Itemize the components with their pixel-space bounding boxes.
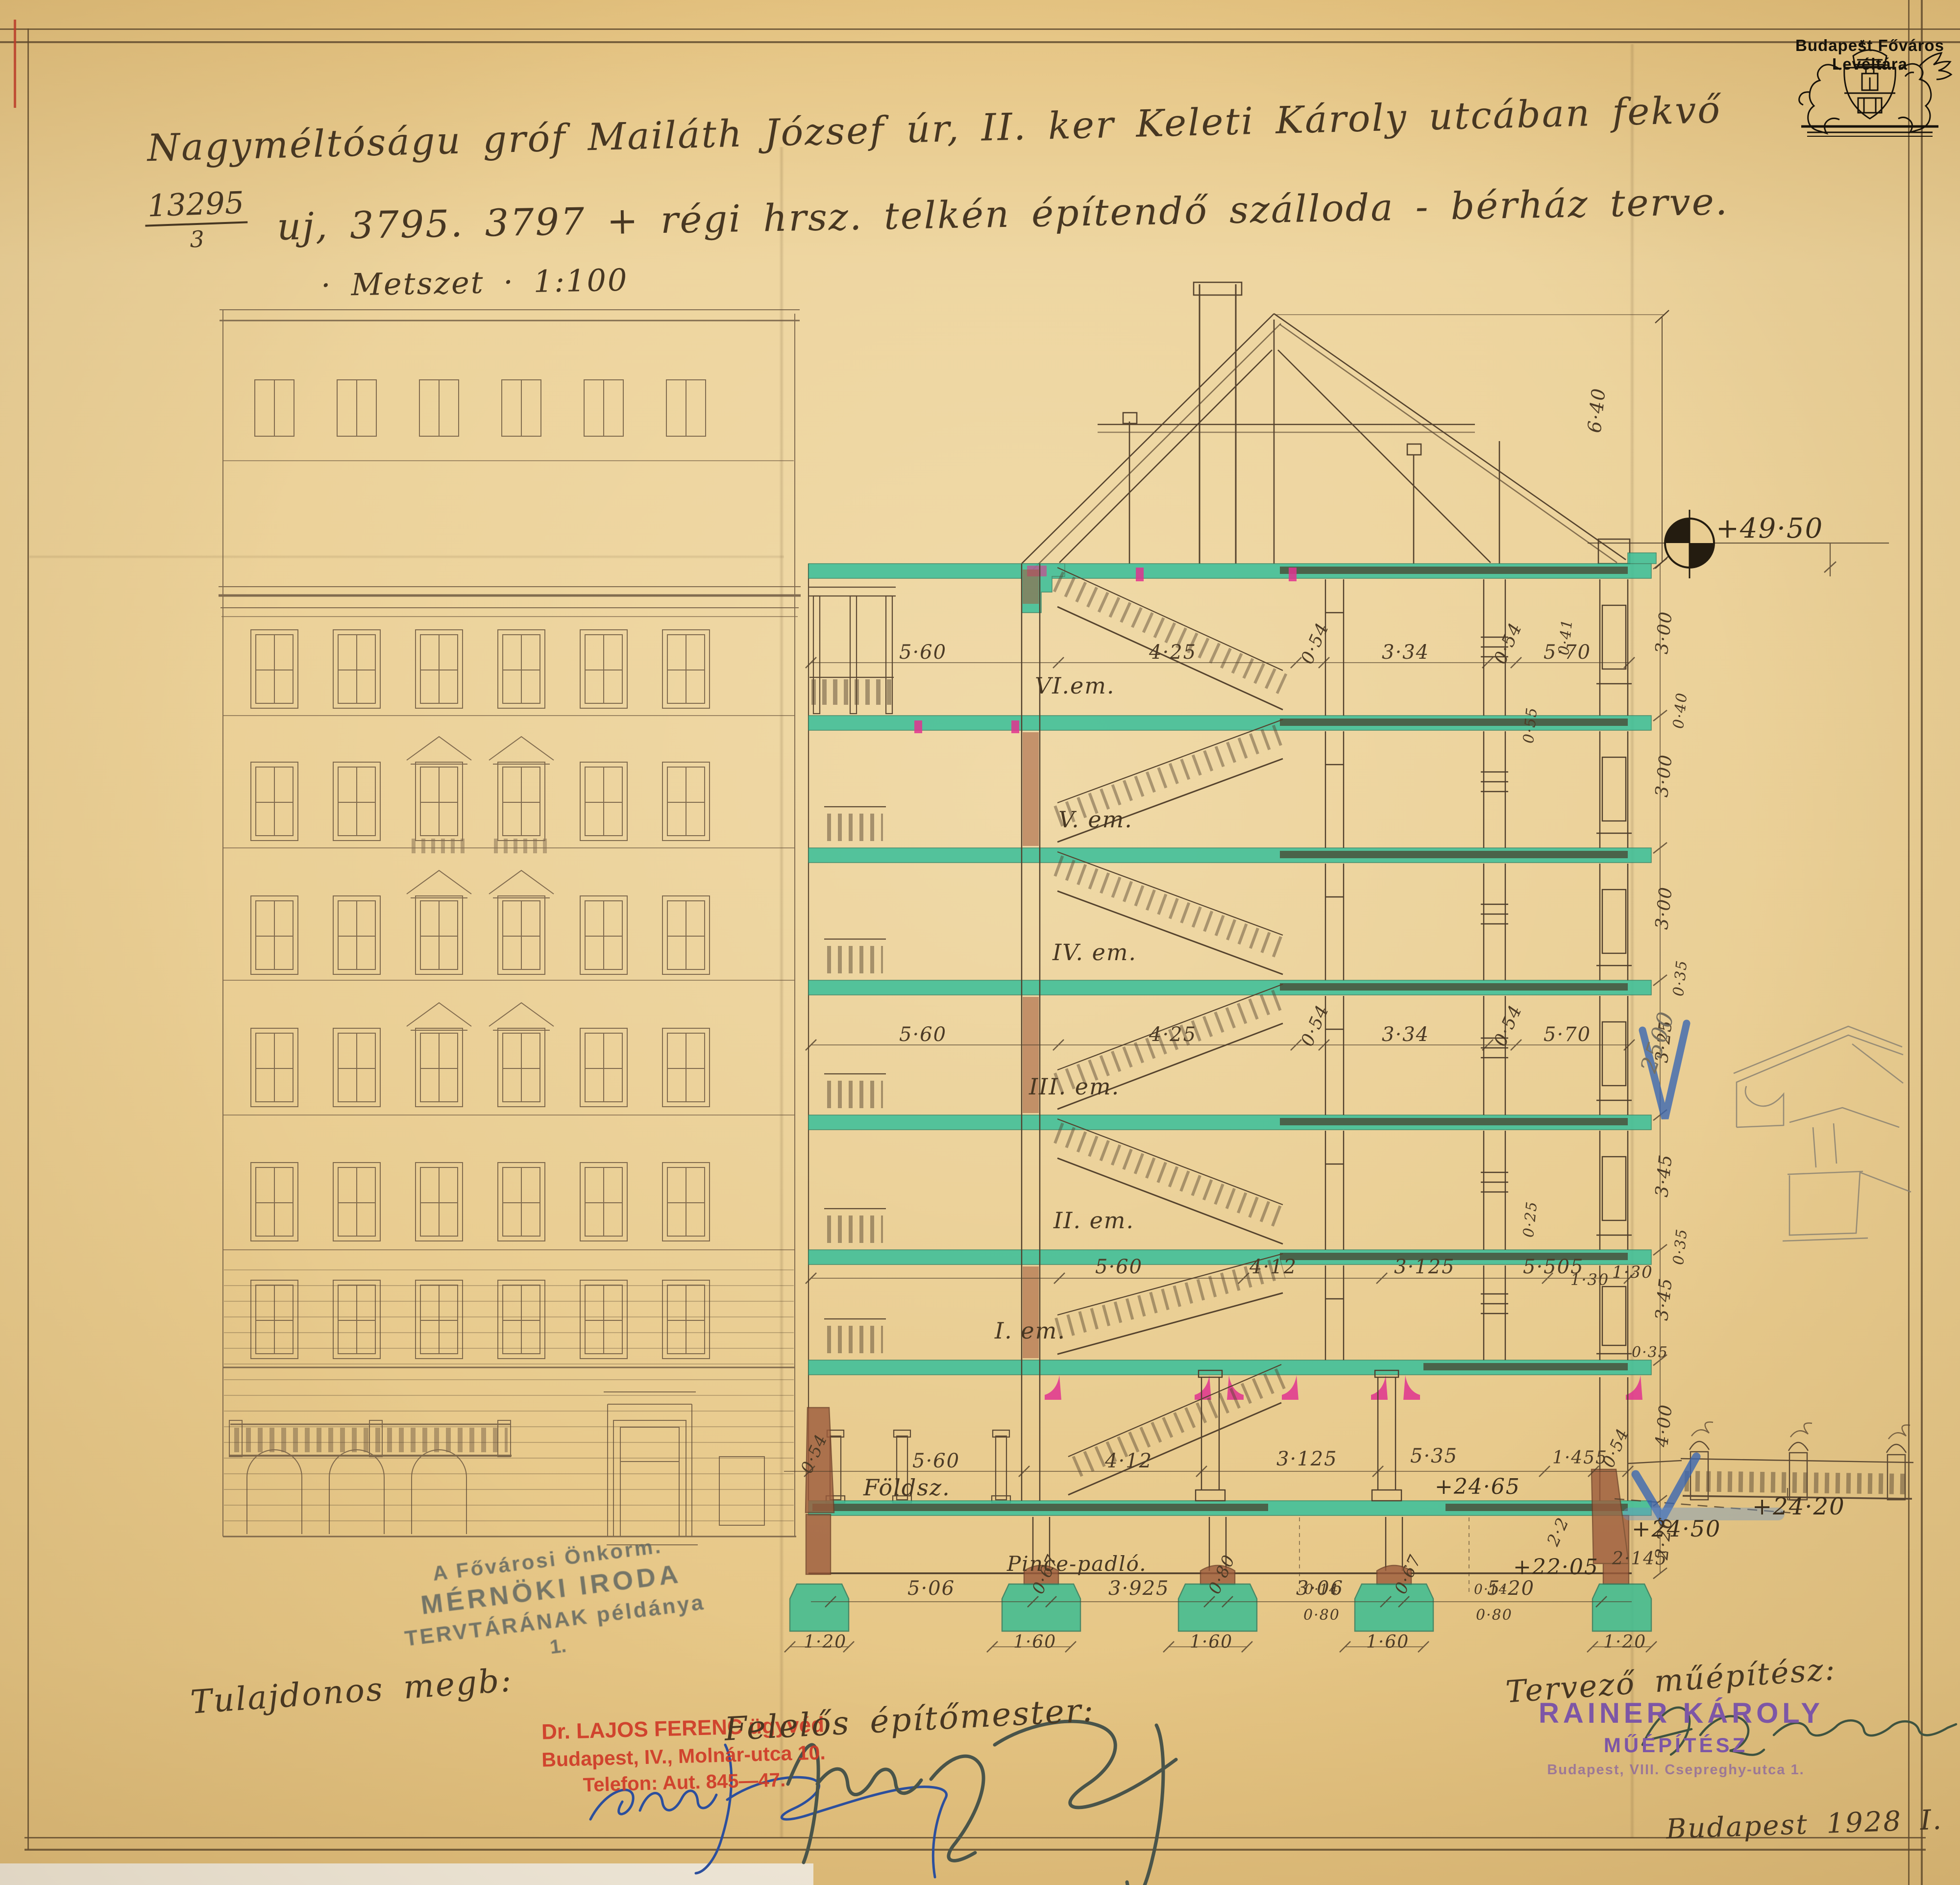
dim: 1·30	[1612, 1263, 1653, 1282]
dim: 1·30	[1570, 1270, 1609, 1289]
dim: 1·60	[1013, 1632, 1056, 1652]
lawyer-stamp-line2: Budapest, IV., Molnár-utca 10.	[527, 1741, 841, 1772]
drawing-sheet: Nagyméltóságu gróf Mailáth József úr, II…	[0, 0, 1960, 1885]
floor-label-iii: III. em.	[1029, 1073, 1120, 1100]
dim: 4·25	[1149, 1023, 1197, 1046]
dim: 1·20	[804, 1632, 847, 1652]
dim: 5·70	[1543, 1023, 1591, 1046]
dim: 3·34	[1382, 1023, 1429, 1046]
drawing-canvas	[0, 0, 1960, 1885]
dim: 3·34	[1382, 641, 1429, 664]
floor-label-iv: IV. em.	[1053, 939, 1137, 966]
dim: 5·60	[899, 1023, 947, 1046]
benchmark-icon	[1665, 510, 1714, 578]
elevation-street: +24·20	[1752, 1493, 1845, 1520]
facade-rustication	[224, 1255, 794, 1535]
dim: 1·60	[1366, 1632, 1409, 1652]
dim: 4·12	[1249, 1256, 1297, 1278]
elevation-cellar: +22·05	[1513, 1555, 1599, 1580]
floor-label-vi: VI.em.	[1035, 672, 1115, 699]
dim: 0·80	[1476, 1607, 1513, 1624]
roof-truss	[1022, 282, 1669, 570]
floor-label-basement: Pince-padló.	[1007, 1552, 1147, 1576]
dim: 5·60	[899, 641, 947, 664]
dim: 0·14	[1304, 1581, 1339, 1597]
architect-stamp-line3: Budapest, VIII. Csepreghy-utca 1.	[1539, 1762, 1813, 1778]
dim: 0·35	[1632, 1344, 1668, 1361]
dim: 4·12	[1105, 1450, 1152, 1472]
dim: 3·125	[1394, 1256, 1455, 1278]
dim: 5·60	[912, 1450, 960, 1472]
dim: 1·20	[1603, 1632, 1646, 1652]
dim: 1·455	[1552, 1448, 1608, 1468]
floor-label-ii: II. em.	[1053, 1207, 1134, 1234]
dim: 1·60	[1190, 1632, 1233, 1652]
dim: 5·06	[907, 1577, 955, 1600]
dim: 3·925	[1108, 1577, 1170, 1600]
dim: 0·14	[1474, 1581, 1508, 1597]
floor-label-v: V. em.	[1058, 806, 1133, 833]
architect-stamp-line2: MŰÉPÍTÉSZ	[1539, 1734, 1813, 1757]
dim: 5·60	[1095, 1256, 1143, 1278]
dim: 5·35	[1410, 1445, 1458, 1467]
floor-label-ground: Földsz.	[863, 1474, 951, 1501]
elevation-eaves: +49·50	[1716, 513, 1823, 545]
architect-stamp: RAINER KÁROLY MŰÉPÍTÉSZ Budapest, VIII. …	[1539, 1697, 1813, 1778]
dim: 0·80	[1303, 1607, 1340, 1624]
dim: 4·25	[1149, 641, 1197, 664]
architect-stamp-line1: RAINER KÁROLY	[1539, 1697, 1813, 1730]
floor-label-i: I. em.	[995, 1317, 1066, 1344]
pencil-cornice-sketch	[1734, 1026, 1911, 1241]
elevation-terrace: +24·50	[1632, 1515, 1721, 1542]
dim: 3·125	[1276, 1448, 1338, 1470]
elevation-ground: +24·65	[1435, 1474, 1520, 1499]
